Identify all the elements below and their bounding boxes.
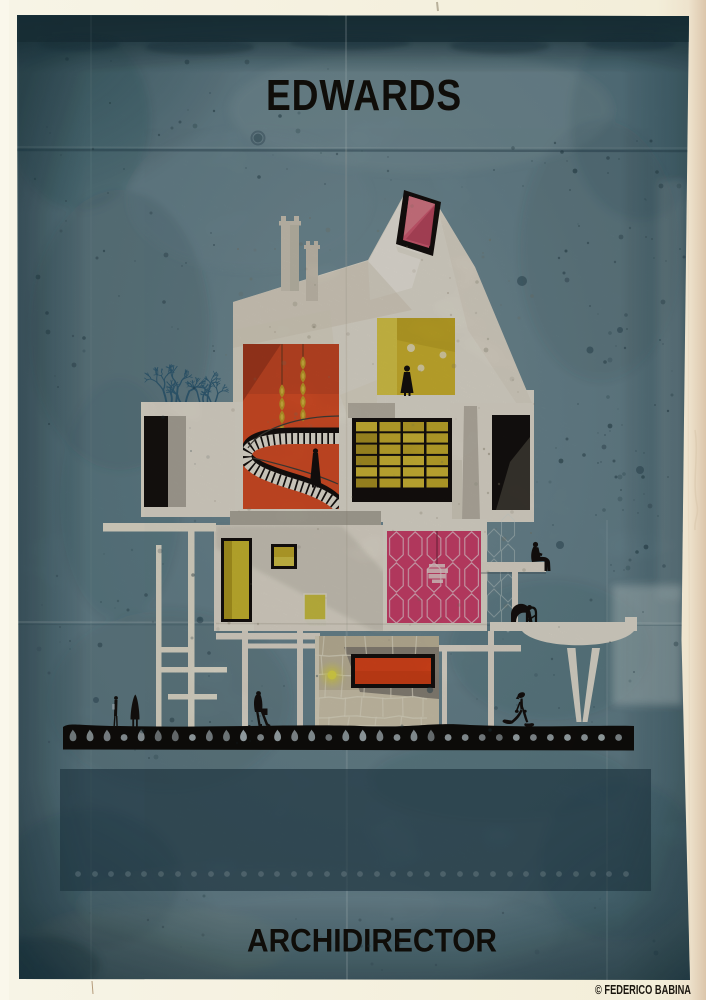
svg-text:© FEDERICO BABINA: © FEDERICO BABINA [595,983,691,997]
